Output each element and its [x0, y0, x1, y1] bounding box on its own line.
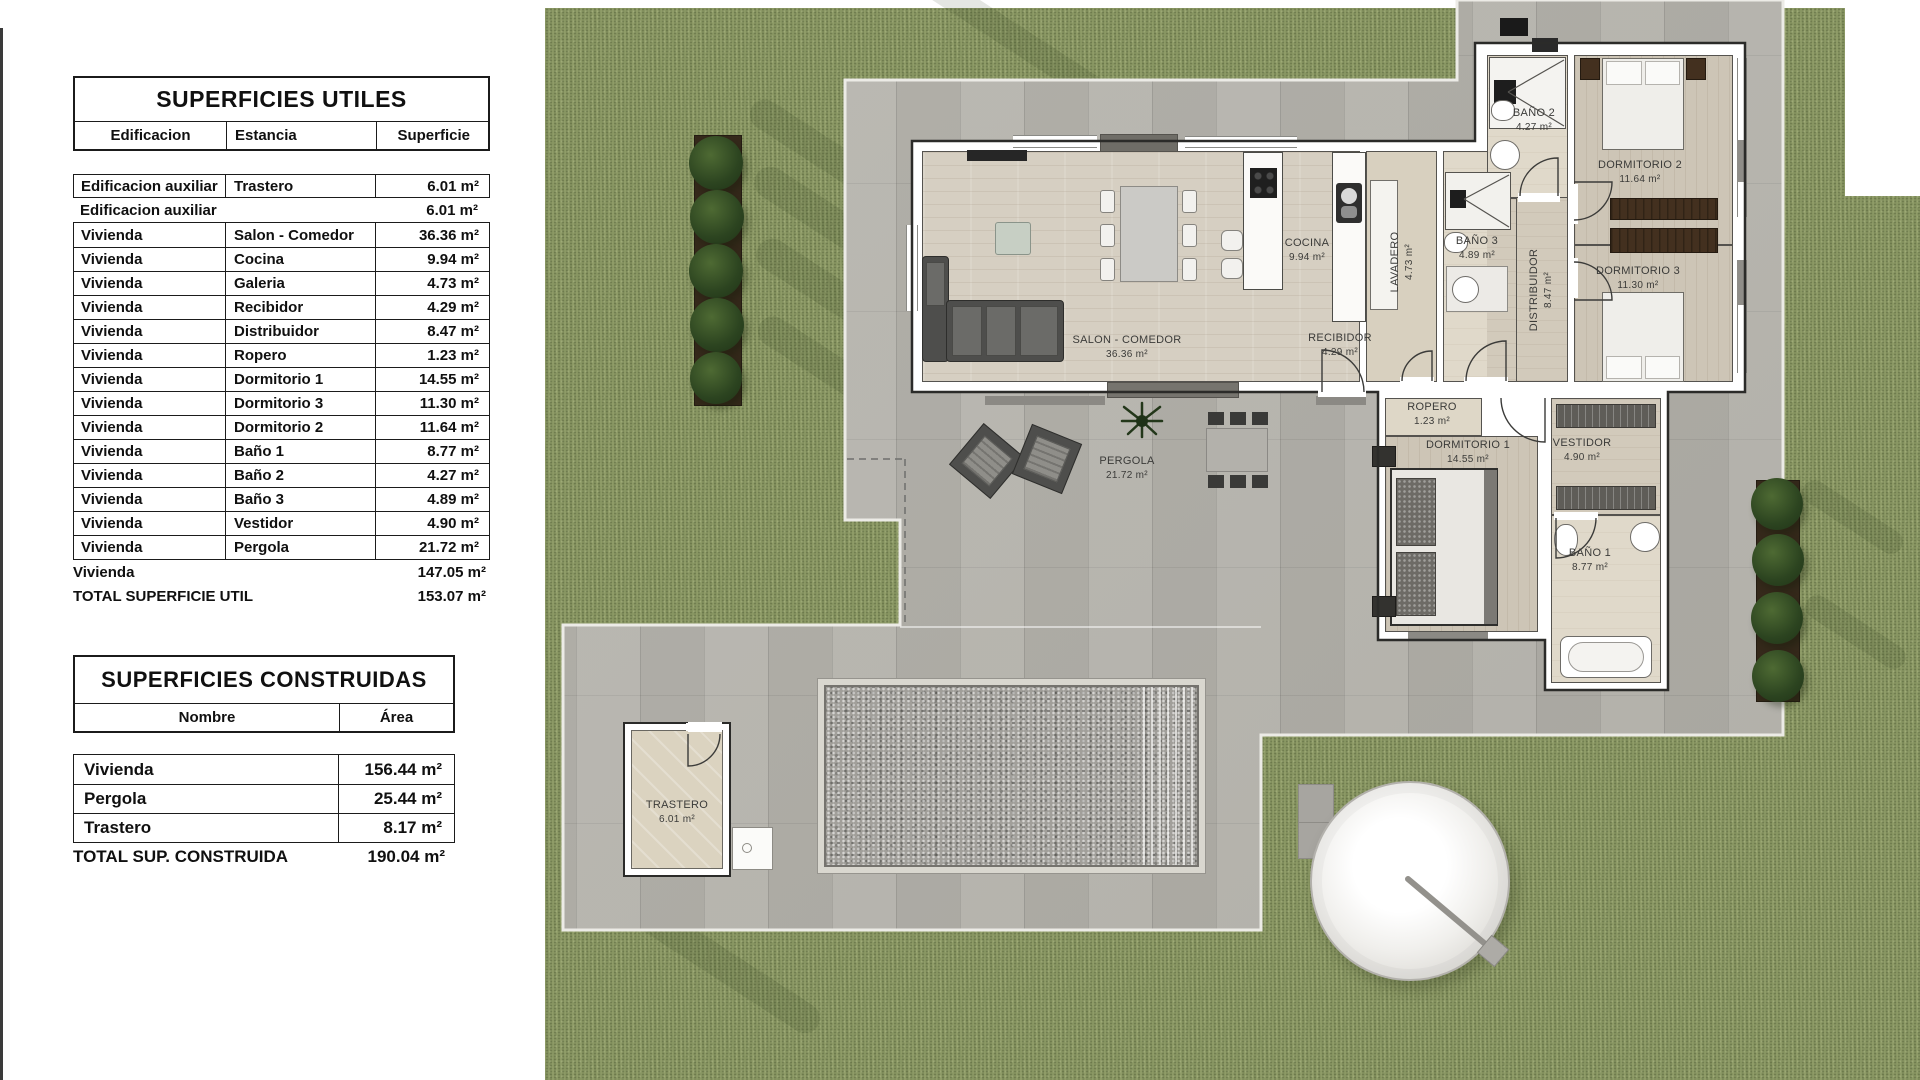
col-estancia: Estancia [226, 122, 376, 149]
table-row: ViviendaRecibidor4.29 m² [74, 295, 489, 319]
sliding-door-recess [1107, 382, 1239, 398]
col-area: Área [339, 704, 453, 731]
sofa-cushion [926, 262, 945, 306]
table-body: Vivienda156.44 m² Pergola25.44 m² Traste… [73, 754, 455, 843]
coffee-table [995, 222, 1031, 255]
sofa-cushion [1020, 306, 1058, 356]
tree [690, 298, 744, 352]
outdoor-chair [1230, 475, 1246, 488]
window-sill [1408, 632, 1488, 641]
room-label-dormitorio-1: DORMITORIO 114.55 m² [1426, 438, 1510, 466]
roof-vent [1532, 38, 1558, 52]
table-row: Vivienda156.44 m² [74, 755, 454, 784]
outdoor-chair [1252, 475, 1268, 488]
table-row: ViviendaCocina9.94 m² [74, 247, 489, 271]
room-label-salon-comedor: SALON - COMEDOR36.36 m² [1072, 333, 1181, 361]
wardrobe [1610, 198, 1718, 220]
col-edificacion: Edificacion [75, 122, 226, 149]
dining-chair [1182, 190, 1197, 213]
cooktop [1250, 168, 1277, 198]
table-body: ViviendaSalon - Comedor36.36 m² Vivienda… [73, 222, 490, 560]
dining-chair [1100, 190, 1115, 213]
wall-block [1737, 260, 1747, 305]
sink-bowl [1341, 188, 1357, 204]
superficies-construidas-table: SUPERFICIES CONSTRUIDAS Nombre Área Vivi… [73, 655, 455, 871]
table-row: ViviendaDormitorio 211.64 m² [74, 415, 489, 439]
room-label-ropero: ROPERO1.23 m² [1407, 400, 1456, 428]
table-row: ViviendaBaño 18.77 m² [74, 439, 489, 463]
pillow [1645, 356, 1680, 379]
table-row: ViviendaPergola21.72 m² [74, 535, 489, 559]
sink-round [1490, 140, 1520, 170]
room-label-bano-1: BAÑO 18.77 m² [1569, 546, 1611, 574]
room-label-dormitorio-3: DORMITORIO 311.30 m² [1596, 264, 1680, 292]
dining-table [1120, 186, 1178, 282]
pillow-textured [1396, 552, 1436, 616]
page-edge-line [0, 28, 3, 1080]
outdoor-chair [1208, 412, 1224, 425]
storage-door-opening [688, 722, 722, 732]
room-label-bano-3: BAÑO 34.89 m² [1456, 234, 1498, 262]
window-recess [1100, 134, 1178, 152]
col-superficie: Superficie [376, 122, 488, 149]
room-label-distribuidor: DISTRIBUIDOR8.47 m² [1527, 249, 1555, 331]
window [906, 225, 918, 311]
outdoor-chair [1252, 412, 1268, 425]
outdoor-chair [1230, 412, 1246, 425]
room-label-bano-2: BAÑO 24.27 m² [1513, 106, 1555, 134]
table-row: ViviendaGaleria4.73 m² [74, 271, 489, 295]
bar-stool [1221, 230, 1243, 251]
tree [689, 136, 743, 190]
table-row: Pergola25.44 m² [74, 784, 454, 813]
tree [1751, 478, 1803, 530]
pillow-textured [1396, 478, 1436, 546]
nightstand [1372, 596, 1396, 617]
tree [1752, 534, 1804, 586]
table-row: Trastero8.17 m² [74, 813, 454, 842]
table-row: Edificacion auxiliar Trastero 6.01 m² [73, 174, 490, 198]
nightstand [1686, 58, 1706, 80]
table-row: ViviendaBaño 34.89 m² [74, 487, 489, 511]
roof-vent [1500, 18, 1528, 36]
room-label-trastero: TRASTERO6.01 m² [646, 798, 708, 826]
plot-corner-cutout [1845, 0, 1920, 196]
table-title: SUPERFICIES UTILES [75, 78, 488, 121]
col-nombre: Nombre [75, 704, 339, 731]
table-row: ViviendaBaño 24.27 m² [74, 463, 489, 487]
bathtub-basin [1568, 642, 1644, 672]
tree [1751, 592, 1803, 644]
entrance-step [1316, 396, 1366, 405]
table-row: ViviendaDistribuidor8.47 m² [74, 319, 489, 343]
table-row: ViviendaSalon - Comedor36.36 m² [74, 223, 489, 247]
exterior-pad [732, 827, 773, 870]
superficies-utiles-table: SUPERFICIES UTILES Edificacion Estancia … [73, 76, 490, 608]
toilet [1491, 100, 1515, 121]
room-label-recibidor: RECIBIDOR4.29 m² [1308, 331, 1372, 359]
room-label-cocina: COCINA9.94 m² [1285, 236, 1330, 264]
closet [1556, 486, 1656, 510]
dining-chair [1100, 224, 1115, 247]
sink-bowl [1341, 206, 1357, 218]
window [1737, 305, 1747, 373]
room-label-vestidor: VESTIDOR4.90 m² [1553, 436, 1612, 464]
dining-chair [1182, 258, 1197, 281]
sofa-cushion [952, 306, 982, 356]
closet [1556, 404, 1656, 428]
pillow [1645, 61, 1680, 85]
dining-chair [1100, 258, 1115, 281]
outdoor-table [1206, 428, 1268, 472]
exterior-step [985, 396, 1105, 405]
dome-structure [1310, 781, 1510, 981]
tree [1752, 650, 1804, 702]
table-row: ViviendaVestidor4.90 m² [74, 511, 489, 535]
column-headers: Nombre Área [75, 703, 453, 731]
table-header: SUPERFICIES CONSTRUIDAS Nombre Área [73, 655, 455, 733]
sofa-cushion [986, 306, 1016, 356]
wardrobe [1610, 228, 1718, 253]
bar-stool [1221, 258, 1243, 279]
tree [690, 352, 742, 404]
total-construida-row: TOTAL SUP. CONSTRUIDA 190.04 m² [73, 843, 455, 871]
nightstand [1372, 446, 1396, 467]
room-label-lavadero: LAVADERO4.73 m² [1388, 232, 1416, 293]
window [1737, 58, 1747, 140]
floor-plan-page: SALON - COMEDOR36.36 m² COCINA9.94 m² LA… [0, 0, 1920, 1080]
tree [689, 244, 743, 298]
table-row: ViviendaRopero1.23 m² [74, 343, 489, 367]
pool-steps [1143, 687, 1197, 865]
outdoor-chair [1208, 475, 1224, 488]
sink-round [1630, 522, 1660, 552]
pool-basin [824, 685, 1199, 867]
nightstand [1580, 58, 1600, 80]
dining-chair [1182, 224, 1197, 247]
room-label-pergola: PERGOLA21.72 m² [1099, 454, 1154, 482]
swimming-pool [817, 678, 1206, 874]
total-util-row: TOTAL SUPERFICIE UTIL 153.07 m² [73, 584, 490, 608]
tv-console [967, 150, 1027, 161]
wall-block [1737, 140, 1747, 182]
room-label-dormitorio-2: DORMITORIO 211.64 m² [1598, 158, 1682, 186]
pillow [1606, 356, 1642, 379]
table-row: ViviendaDormitorio 114.55 m² [74, 367, 489, 391]
table-header: SUPERFICIES UTILES Edificacion Estancia … [73, 76, 490, 151]
window [1013, 135, 1097, 148]
column-headers: Edificacion Estancia Superficie [75, 121, 488, 149]
subtotal-vivienda-row: Vivienda 147.05 m² [73, 560, 490, 584]
window [1737, 182, 1747, 217]
table-subtotal-row: Edificacion auxiliar 6.01 m² [73, 198, 490, 222]
tree [690, 190, 744, 244]
shower-column [1450, 190, 1466, 208]
bed-frame-edge [1484, 470, 1497, 624]
table-title: SUPERFICIES CONSTRUIDAS [75, 657, 453, 703]
table-row: ViviendaDormitorio 311.30 m² [74, 391, 489, 415]
pillow [1606, 61, 1642, 85]
kitchen-counter [1332, 152, 1366, 322]
window [1185, 136, 1297, 148]
sink-round [1452, 276, 1479, 303]
